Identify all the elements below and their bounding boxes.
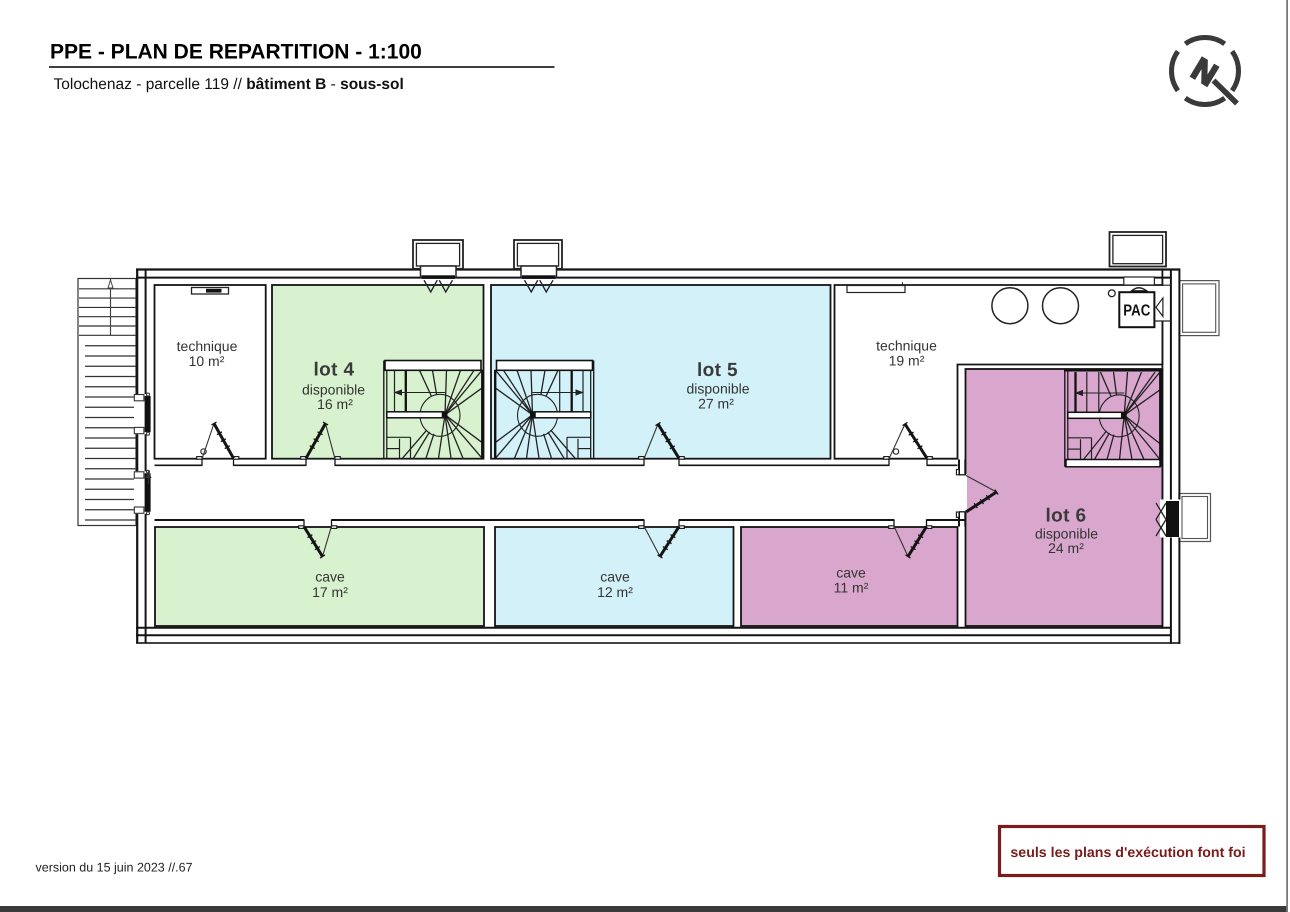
svg-text:27 m²: 27 m² — [698, 396, 734, 412]
svg-text:version du 15 juin 2023 //.67: version du 15 juin 2023 //.67 — [36, 861, 193, 875]
svg-text:lot 4: lot 4 — [313, 360, 354, 381]
svg-text:disponible: disponible — [686, 381, 749, 397]
svg-text:lot 6: lot 6 — [1045, 506, 1086, 527]
svg-text:16 m²: 16 m² — [317, 396, 353, 412]
svg-text:technique: technique — [177, 338, 238, 354]
svg-text:Tolochenaz - parcelle 119 // b: Tolochenaz - parcelle 119 // bâtiment B … — [54, 76, 404, 93]
svg-text:11 m²: 11 m² — [834, 580, 869, 596]
svg-text:cave: cave — [836, 565, 866, 581]
svg-text:PPE - PLAN DE REPARTITION - 1:: PPE - PLAN DE REPARTITION - 1:100 — [50, 41, 422, 64]
svg-text:PAC: PAC — [1123, 303, 1150, 320]
svg-text:19 m²: 19 m² — [889, 353, 925, 369]
svg-text:24 m²: 24 m² — [1048, 540, 1084, 556]
svg-text:seuls les plans d'exécution fo: seuls les plans d'exécution font foi — [1010, 845, 1245, 861]
svg-text:12 m²: 12 m² — [597, 584, 633, 600]
svg-text:17 m²: 17 m² — [312, 584, 348, 600]
svg-text:cave: cave — [600, 569, 630, 585]
svg-text:cave: cave — [315, 569, 345, 585]
svg-text:technique: technique — [876, 338, 937, 354]
svg-text:lot 5: lot 5 — [697, 360, 738, 381]
svg-text:10 m²: 10 m² — [189, 353, 225, 369]
